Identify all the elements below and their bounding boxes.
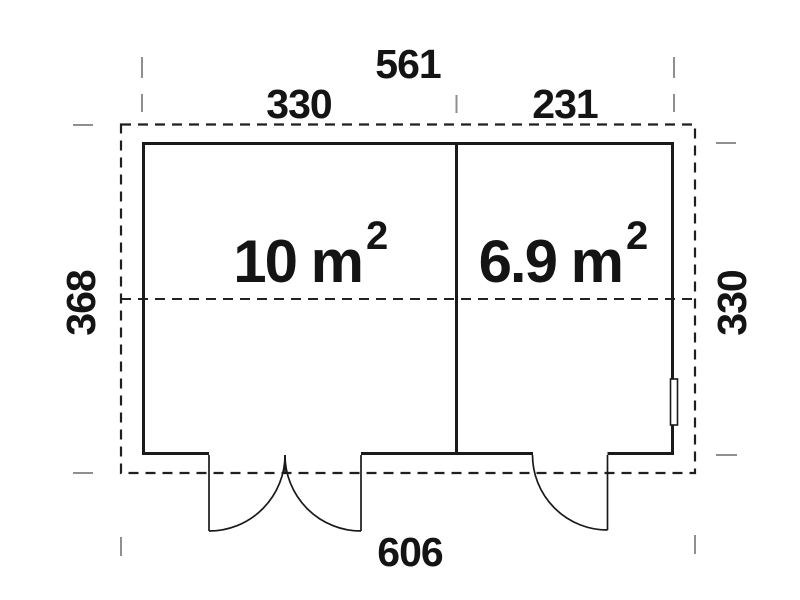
dimension-label-top-left-section: 330 [266, 81, 332, 127]
dimension-label-right-height: 330 [709, 270, 755, 336]
dimension-label-top-right-section: 231 [532, 81, 598, 127]
double-door-left-swing-arc [209, 455, 285, 531]
dimension-label-left-height: 368 [58, 270, 104, 336]
single-door-swing-arc [533, 455, 608, 530]
room-label-left-room: 10 m [233, 228, 362, 295]
floor-plan-drawing: 561 330 231 368 330 606 10 m 2 6.9 m 2 [0, 0, 800, 600]
room-label-right-room-superscript: 2 [626, 214, 648, 258]
room-label-left-room-superscript: 2 [366, 214, 388, 258]
dimension-label-bottom-overall: 606 [377, 529, 443, 575]
dimension-label-top-overall: 561 [375, 41, 441, 87]
floor-plan-canvas: 561 330 231 368 330 606 10 m 2 6.9 m 2 [0, 0, 800, 600]
window-symbol [671, 379, 678, 425]
room-label-right-room: 6.9 m [479, 228, 622, 295]
double-door-right-swing-arc [285, 455, 361, 531]
